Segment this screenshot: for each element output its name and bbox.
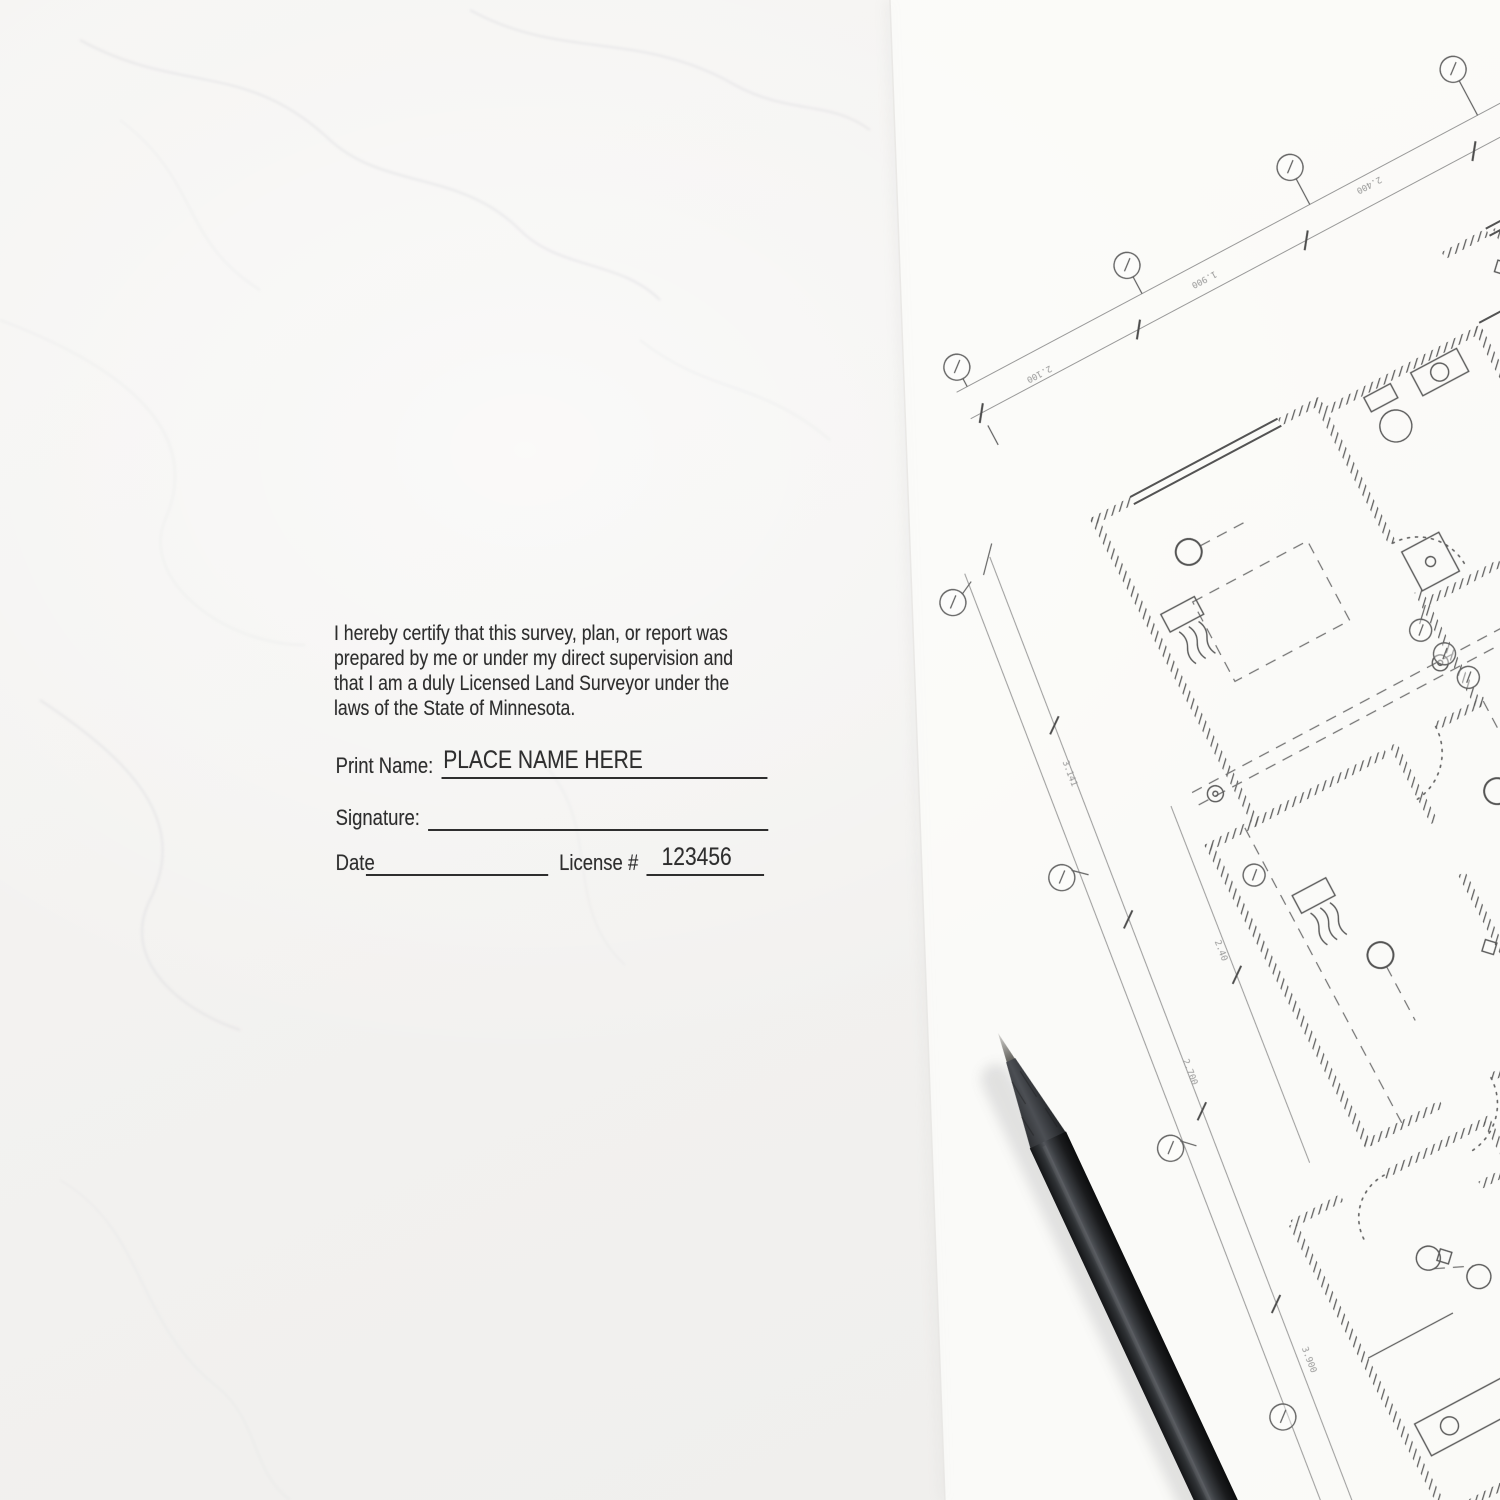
certification-line: I hereby certify that this survey, plan,… — [334, 621, 788, 646]
print-name-underline — [442, 777, 768, 779]
date-underline — [366, 874, 548, 876]
print-name-label: Print Name: — [336, 754, 434, 778]
photo-scene: 2.100 1.900 2.400 1.800 — [0, 0, 1500, 1500]
certification-line: laws of the State of Minnesota. — [334, 696, 788, 721]
print-name-value: PLACE NAME HERE — [443, 747, 643, 774]
blueprint-paper — [890, 0, 1500, 1500]
certification-text: I hereby certify that this survey, plan,… — [334, 621, 788, 721]
certification-line: prepared by me or under my direct superv… — [334, 646, 788, 671]
surveyor-stamp: I hereby certify that this survey, plan,… — [334, 616, 788, 906]
license-label: License # — [559, 851, 638, 875]
certification-line: that I am a duly Licensed Land Surveyor … — [334, 671, 788, 696]
date-label: Date — [336, 851, 375, 875]
license-value: 123456 — [662, 844, 732, 871]
signature-label: Signature: — [336, 806, 420, 830]
license-underline — [646, 874, 764, 876]
signature-underline — [428, 829, 768, 831]
